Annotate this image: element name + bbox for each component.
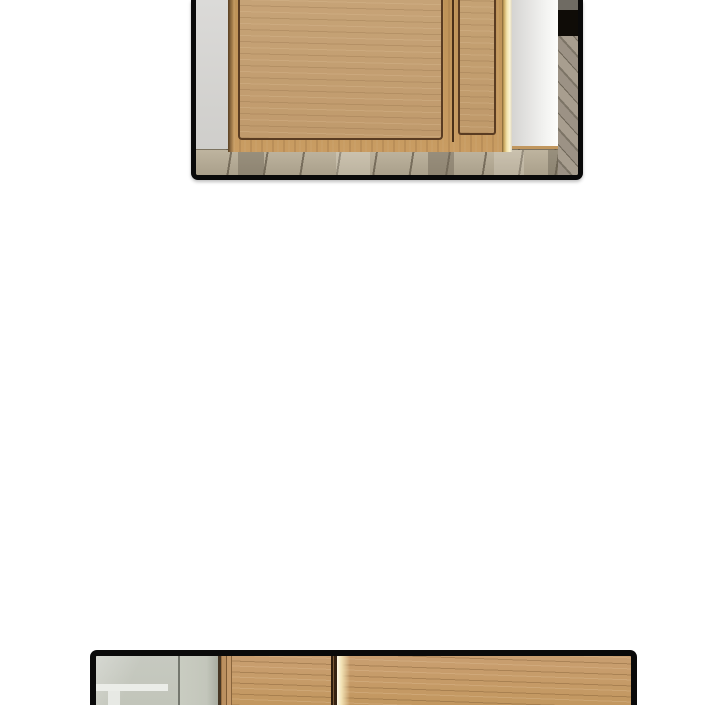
door-main-panel (238, 0, 443, 140)
floor-plank-dark (428, 150, 454, 176)
wooden-cabinet (218, 656, 631, 705)
cabinet-scene-panel (90, 650, 637, 705)
floor-plank-light (494, 150, 524, 176)
door-seam-line (452, 0, 454, 142)
wall-section (180, 656, 218, 705)
white-trim-strip (108, 691, 120, 705)
door-right-panel (458, 0, 496, 135)
hallway-strip (558, 0, 578, 175)
hallway-dark-opening (558, 10, 578, 36)
wood-floor (196, 149, 578, 176)
door-scene-panel (191, 0, 583, 180)
cabinet-light-seam (337, 656, 350, 705)
right-wall-column (512, 0, 558, 146)
floor-plank-light (336, 150, 370, 176)
hallway-top-gray (558, 0, 578, 10)
webtoon-page: { "page": { "type": "webtoon-comic-page"… (0, 0, 720, 700)
green-gray-wall (96, 656, 178, 705)
door-light-gap (502, 0, 512, 152)
left-wall (196, 0, 229, 149)
wooden-door (228, 0, 512, 152)
cabinet-frame-strip (221, 656, 232, 705)
floor-plank-dark (238, 150, 264, 176)
white-trim-band (96, 684, 168, 691)
